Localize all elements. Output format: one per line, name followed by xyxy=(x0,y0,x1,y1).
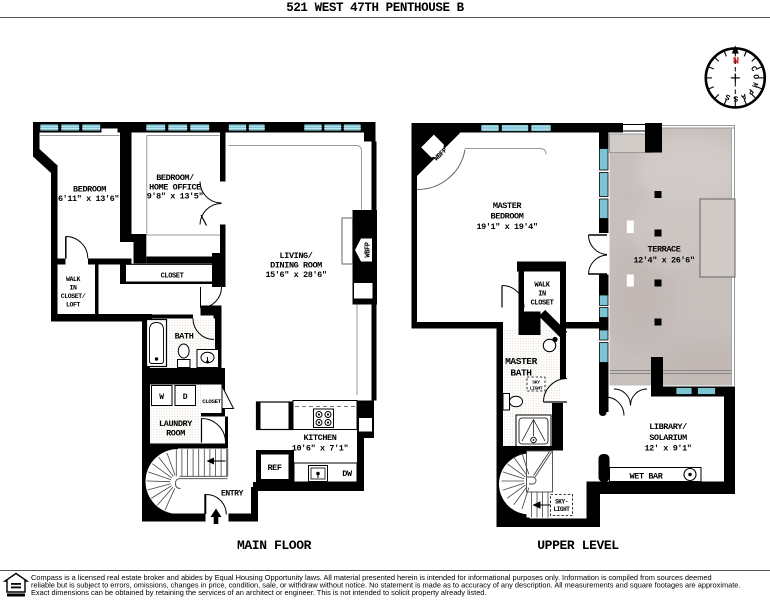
svg-text:12'4" x 26'6": 12'4" x 26'6" xyxy=(633,256,694,266)
svg-text:D: D xyxy=(183,393,188,402)
svg-text:6'11" x 13'6": 6'11" x 13'6" xyxy=(58,194,119,204)
svg-text:WBFP: WBFP xyxy=(364,242,372,257)
svg-text:WET BAR: WET BAR xyxy=(630,472,664,482)
svg-text:WALK: WALK xyxy=(66,276,81,283)
svg-text:W: W xyxy=(159,393,164,402)
svg-text:N: N xyxy=(733,56,739,68)
svg-text:MAIN FLOOR: MAIN FLOOR xyxy=(237,538,312,553)
svg-text:IN: IN xyxy=(538,291,546,299)
svg-text:LOFT: LOFT xyxy=(66,302,81,309)
svg-text:BEDROOM: BEDROOM xyxy=(491,212,524,222)
svg-text:CLOSET: CLOSET xyxy=(202,398,221,405)
svg-text:IN: IN xyxy=(69,285,77,292)
svg-text:CLOSET/: CLOSET/ xyxy=(61,293,86,300)
svg-text:LIGHT: LIGHT xyxy=(553,506,570,513)
svg-text:REF: REF xyxy=(267,463,281,473)
svg-text:MASTER: MASTER xyxy=(493,201,523,211)
svg-text:9'8" x 13'5": 9'8" x 13'5" xyxy=(147,192,204,202)
svg-text:SOLARIUM: SOLARIUM xyxy=(649,433,687,443)
svg-text:UPPER LEVEL: UPPER LEVEL xyxy=(537,538,619,553)
svg-text:Exact dimensions can be obtain: Exact dimensions can be obtained by reta… xyxy=(31,588,486,597)
svg-text:KITCHEN: KITCHEN xyxy=(304,433,337,443)
svg-text:TERRACE: TERRACE xyxy=(648,245,681,255)
svg-text:DW: DW xyxy=(342,469,353,479)
svg-text:19'1" x 19'4": 19'1" x 19'4" xyxy=(476,222,537,232)
svg-text:12' x 9'1": 12' x 9'1" xyxy=(644,444,691,454)
svg-text:CLOSET: CLOSET xyxy=(531,300,554,308)
svg-text:LAUNDRY: LAUNDRY xyxy=(159,419,193,429)
svg-text:DINING ROOM: DINING ROOM xyxy=(270,261,322,271)
svg-text:15'6" x 28'6": 15'6" x 28'6" xyxy=(265,270,326,280)
svg-text:SKY-: SKY- xyxy=(555,499,568,506)
svg-text:LIBRARY/: LIBRARY/ xyxy=(649,422,687,432)
svg-text:BEDROOM: BEDROOM xyxy=(73,185,106,195)
svg-text:10'6" x 7'1": 10'6" x 7'1" xyxy=(292,444,349,454)
svg-text:WALK: WALK xyxy=(534,282,550,290)
svg-text:LIGHT: LIGHT xyxy=(530,386,543,392)
svg-text:MASTER: MASTER xyxy=(505,356,538,367)
svg-text:BATH: BATH xyxy=(175,332,194,342)
svg-text:ENTRY: ENTRY xyxy=(221,490,244,499)
svg-text:CLOSET: CLOSET xyxy=(161,273,184,281)
svg-text:LIVING/: LIVING/ xyxy=(280,251,313,261)
svg-text:521 WEST 47TH PENTHOUSE B: 521 WEST 47TH PENTHOUSE B xyxy=(286,1,464,15)
svg-text:ROOM: ROOM xyxy=(166,429,185,439)
svg-text:SKY: SKY xyxy=(532,380,540,386)
